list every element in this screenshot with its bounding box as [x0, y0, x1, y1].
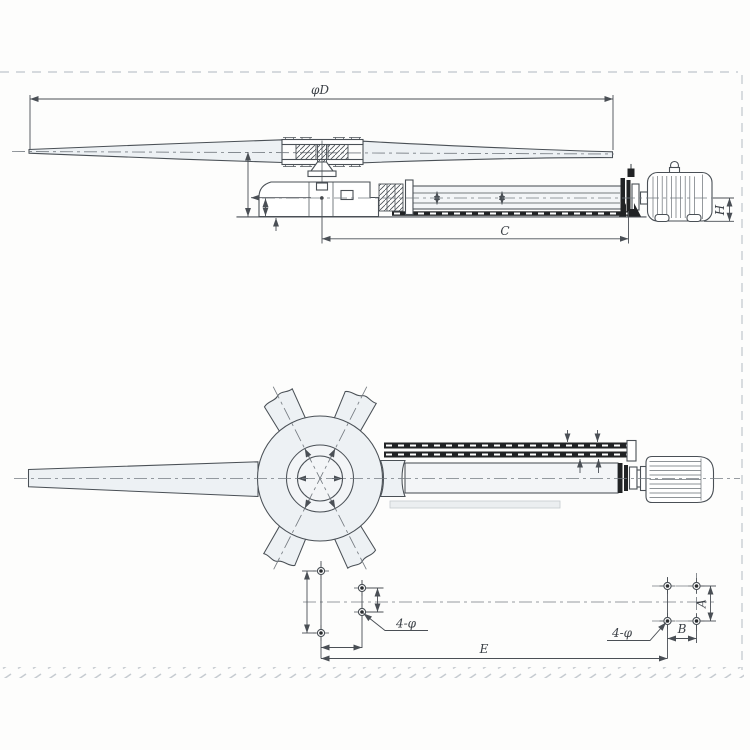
foundation-plan: 4-φ 4-φ A B E — [302, 561, 716, 659]
fan-assembly-drawing: φD — [0, 0, 750, 750]
motor-plan — [641, 457, 714, 503]
phi-d-label: φD — [311, 83, 329, 97]
c-label: C — [500, 224, 509, 238]
mounting-hole — [660, 578, 676, 594]
motor-foot — [655, 215, 669, 222]
a-label: A — [695, 599, 709, 609]
motor-coupling-bracket — [619, 165, 641, 217]
dimension-b: B — [668, 622, 697, 643]
support-beam-side — [392, 211, 630, 216]
front-holes-label: 4-φ — [395, 617, 417, 631]
h-label: H — [713, 204, 727, 216]
blade-left — [29, 140, 282, 163]
b-label: B — [677, 622, 687, 636]
front-holes-callout: 4-φ — [364, 614, 429, 631]
bottom-hatch-border — [0, 667, 744, 678]
dimension-e: E — [321, 642, 668, 659]
plan-blade — [29, 462, 259, 497]
motor-side — [641, 162, 713, 222]
drawing-canvas: φD — [0, 0, 750, 750]
blade-right — [363, 141, 613, 163]
plan-view — [14, 387, 740, 571]
drive-shaft-tube — [413, 186, 623, 209]
e-label: E — [479, 642, 489, 656]
dimension-a: A — [695, 586, 717, 621]
motor-foot — [687, 215, 701, 222]
drive-shaft-tube-plan — [405, 463, 618, 493]
side-view: φD — [12, 83, 734, 244]
gearbox — [259, 182, 379, 217]
dimension-mid-bolt-span — [366, 588, 384, 612]
rear-holes-label: 4-φ — [611, 626, 633, 640]
shaft-coupling — [379, 180, 413, 215]
rear-holes-callout: 4-φ — [607, 623, 666, 641]
